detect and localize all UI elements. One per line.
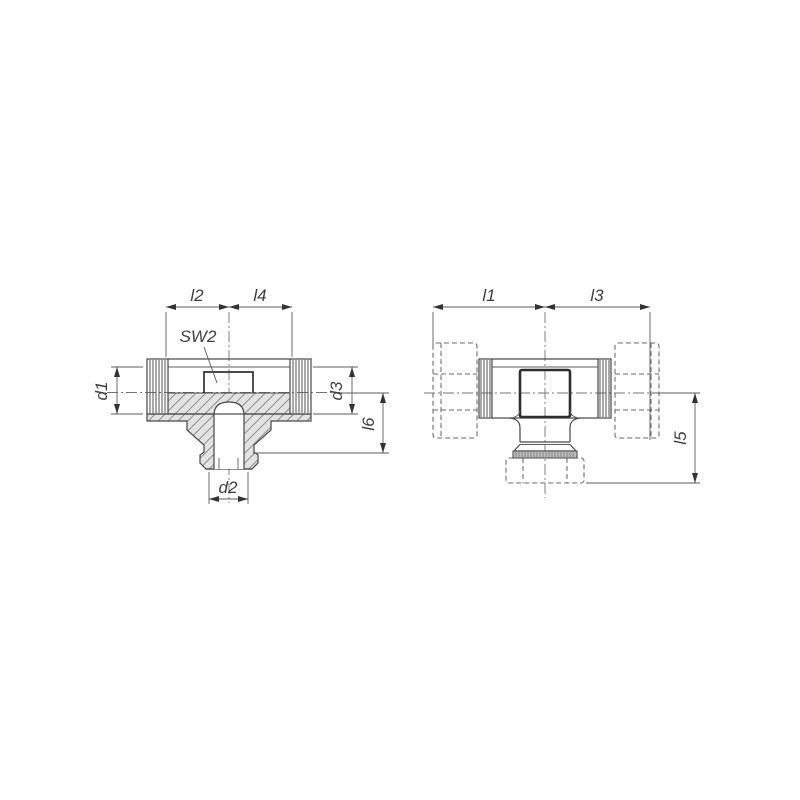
nut-right	[615, 343, 659, 438]
hex-boss-outline	[204, 372, 253, 393]
dim-d3: d3	[313, 367, 358, 414]
dim-label-d2: d2	[219, 478, 238, 497]
outside-view: l1 l3 l5	[424, 286, 700, 498]
technical-drawing: l2 l4 SW2 d1 d3	[0, 0, 800, 800]
nut-left	[433, 343, 477, 438]
dim-label-l5: l5	[671, 431, 690, 445]
dim-label-l3: l3	[590, 286, 604, 305]
drawing-canvas: l2 l4 SW2 d1 d3	[0, 0, 800, 800]
section-view: l2 l4 SW2 d1 d3	[92, 286, 389, 504]
dim-label-l2: l2	[190, 286, 204, 305]
dim-label-sw2: SW2	[180, 327, 217, 346]
dim-label-d1: d1	[92, 382, 111, 401]
dim-label-l4: l4	[253, 286, 266, 305]
dim-d1: d1	[92, 367, 143, 414]
callout-sw2: SW2	[180, 327, 217, 383]
outside-centerlines	[424, 312, 652, 498]
dim-label-l1: l1	[482, 286, 495, 305]
dim-label-l6: l6	[359, 417, 378, 431]
dim-label-d3: d3	[327, 381, 346, 400]
dim-d2: d2	[209, 472, 248, 504]
